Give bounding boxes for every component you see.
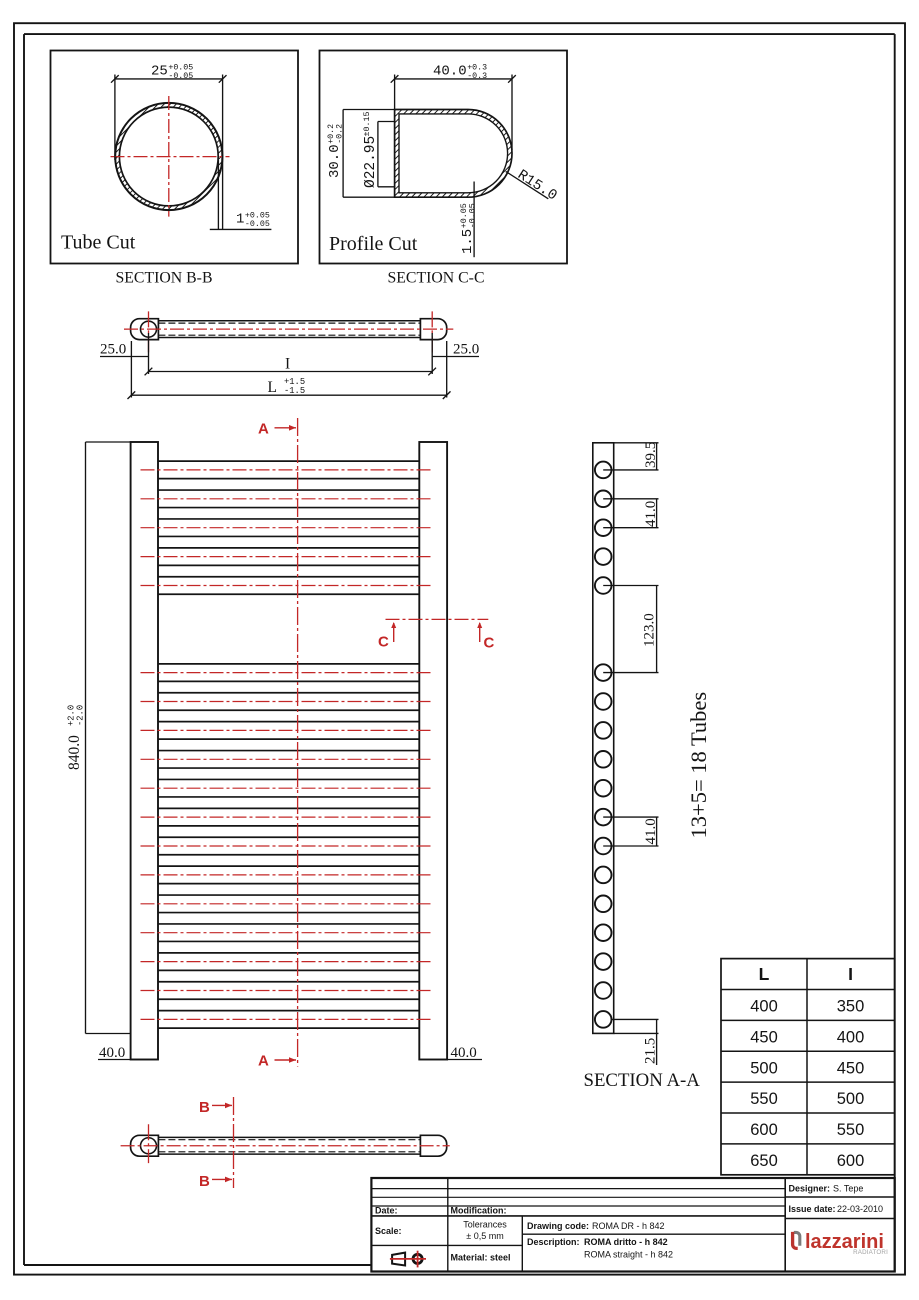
svg-text:±0.15: ±0.15 bbox=[363, 112, 372, 137]
svg-text:Tube Cut: Tube Cut bbox=[61, 232, 136, 254]
svg-text:400: 400 bbox=[750, 998, 778, 1016]
svg-text:-1.5: -1.5 bbox=[284, 386, 305, 396]
svg-text:SECTION A-A: SECTION A-A bbox=[584, 1070, 701, 1091]
svg-text:-0.05: -0.05 bbox=[168, 72, 193, 81]
svg-text:600: 600 bbox=[750, 1121, 778, 1139]
svg-text:25: 25 bbox=[151, 64, 168, 80]
svg-text:550: 550 bbox=[837, 1121, 865, 1139]
svg-text:39.5: 39.5 bbox=[643, 442, 659, 468]
svg-text:Description:: Description: bbox=[527, 1237, 580, 1247]
svg-text:600: 600 bbox=[837, 1152, 865, 1170]
svg-text:Tolerances: Tolerances bbox=[463, 1220, 507, 1230]
svg-text:A: A bbox=[258, 1053, 269, 1070]
svg-text:L: L bbox=[759, 964, 770, 984]
svg-text:-0.3: -0.3 bbox=[467, 72, 487, 81]
svg-text:-2.0: -2.0 bbox=[76, 705, 86, 726]
svg-text:Profile Cut: Profile Cut bbox=[329, 233, 418, 255]
svg-text:40.0: 40.0 bbox=[99, 1045, 125, 1061]
svg-text:-0.05: -0.05 bbox=[468, 203, 477, 228]
svg-text:ROMA dritto - h 842: ROMA dritto - h 842 bbox=[584, 1237, 668, 1247]
svg-text:13+5= 18 Tubes: 13+5= 18 Tubes bbox=[686, 692, 711, 839]
svg-text:500: 500 bbox=[750, 1059, 778, 1077]
svg-text:41.0: 41.0 bbox=[643, 818, 659, 844]
svg-text:650: 650 bbox=[750, 1152, 778, 1170]
svg-text:25.0: 25.0 bbox=[100, 342, 126, 358]
svg-text:41.0: 41.0 bbox=[643, 501, 659, 527]
svg-text:840.0: 840.0 bbox=[66, 735, 83, 770]
svg-text:Material: steel: Material: steel bbox=[451, 1253, 511, 1263]
svg-text:S. Tepe: S. Tepe bbox=[833, 1184, 863, 1194]
svg-text:A: A bbox=[258, 421, 269, 438]
svg-text:B: B bbox=[199, 1099, 210, 1116]
svg-text:RADIATORI: RADIATORI bbox=[853, 1249, 888, 1256]
svg-text:40.0: 40.0 bbox=[451, 1045, 477, 1061]
svg-text:25.0: 25.0 bbox=[453, 342, 479, 358]
svg-text:ROMA straight - h 842: ROMA straight - h 842 bbox=[584, 1250, 673, 1260]
svg-text:450: 450 bbox=[750, 1028, 778, 1046]
svg-text:123.0: 123.0 bbox=[642, 613, 658, 647]
svg-text:-0.2: -0.2 bbox=[335, 124, 344, 144]
svg-text:350: 350 bbox=[837, 998, 865, 1016]
svg-text:Issue date:: Issue date: bbox=[789, 1204, 836, 1214]
svg-text:550: 550 bbox=[750, 1090, 778, 1108]
svg-text:1: 1 bbox=[236, 212, 244, 228]
svg-text:Scale:: Scale: bbox=[375, 1226, 402, 1236]
svg-text:400: 400 bbox=[837, 1028, 865, 1046]
svg-text:R15.0: R15.0 bbox=[514, 167, 559, 204]
svg-text:1.5: 1.5 bbox=[460, 229, 476, 254]
svg-text:Designer:: Designer: bbox=[789, 1184, 831, 1194]
svg-text:SECTION B-B: SECTION B-B bbox=[116, 270, 213, 287]
svg-text:500: 500 bbox=[837, 1090, 865, 1108]
svg-text:Modification:: Modification: bbox=[451, 1206, 507, 1216]
svg-text:Date:: Date: bbox=[375, 1206, 398, 1216]
svg-text:21.5: 21.5 bbox=[643, 1038, 659, 1064]
svg-text:-0.05: -0.05 bbox=[245, 220, 270, 229]
svg-text:ROMA DR - h 842: ROMA DR - h 842 bbox=[592, 1221, 665, 1231]
svg-text:22-03-2010: 22-03-2010 bbox=[837, 1204, 883, 1214]
svg-text:SECTION C-C: SECTION C-C bbox=[388, 270, 485, 287]
svg-text:C: C bbox=[378, 634, 389, 651]
svg-text:Drawing code:: Drawing code: bbox=[527, 1221, 589, 1231]
svg-text:40.0: 40.0 bbox=[433, 64, 467, 80]
svg-text:30.0: 30.0 bbox=[327, 144, 343, 178]
svg-text:± 0,5 mm: ± 0,5 mm bbox=[466, 1231, 503, 1241]
svg-text:B: B bbox=[199, 1173, 210, 1190]
svg-text:I: I bbox=[285, 356, 290, 373]
svg-text:Ø22.95: Ø22.95 bbox=[363, 136, 379, 188]
svg-text:L: L bbox=[268, 379, 277, 396]
svg-text:I: I bbox=[848, 964, 853, 984]
svg-text:450: 450 bbox=[837, 1059, 865, 1077]
svg-text:C: C bbox=[484, 635, 495, 652]
